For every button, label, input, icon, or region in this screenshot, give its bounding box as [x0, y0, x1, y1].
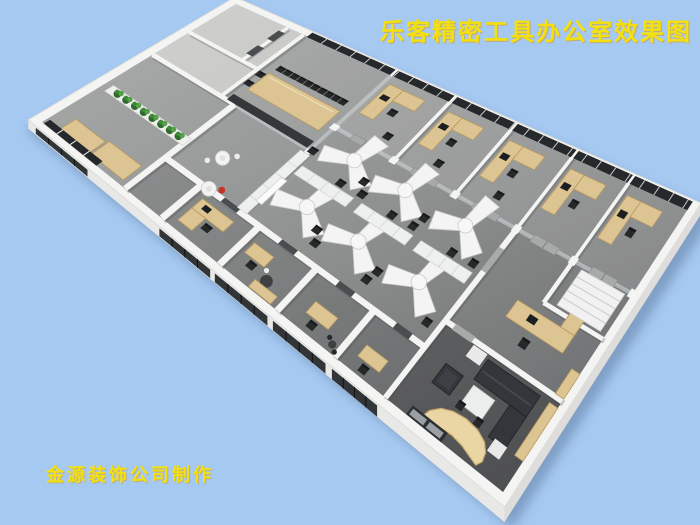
round-table-stem: [220, 155, 226, 161]
plant: [141, 108, 145, 112]
round-table-stem: [206, 186, 212, 192]
plant: [176, 132, 180, 136]
render-title: 乐客精密工具办公室效果图: [380, 12, 692, 47]
plant: [124, 96, 128, 100]
red-stool: [218, 187, 225, 194]
stool: [234, 154, 240, 160]
plant: [159, 120, 163, 124]
office-render-scene: 乐客精密工具办公室效果图 金源装饰公司制作: [0, 0, 700, 525]
workstation-hub: [458, 218, 473, 233]
plant: [115, 90, 119, 94]
stool: [205, 158, 211, 164]
plant: [132, 102, 136, 106]
stool: [327, 335, 332, 340]
workstation-hub: [347, 153, 362, 168]
workstation-hub: [411, 274, 426, 289]
workstation-hub: [398, 183, 413, 198]
workstation-hub: [351, 234, 366, 249]
stool: [264, 268, 269, 273]
credit-watermark: 金源装饰公司制作: [46, 461, 214, 487]
plant: [167, 126, 171, 130]
stool: [332, 349, 337, 354]
plant: [150, 114, 154, 118]
floorplan-3d-render: [0, 0, 700, 525]
workstation-hub: [299, 199, 314, 214]
side-table: [328, 340, 336, 348]
